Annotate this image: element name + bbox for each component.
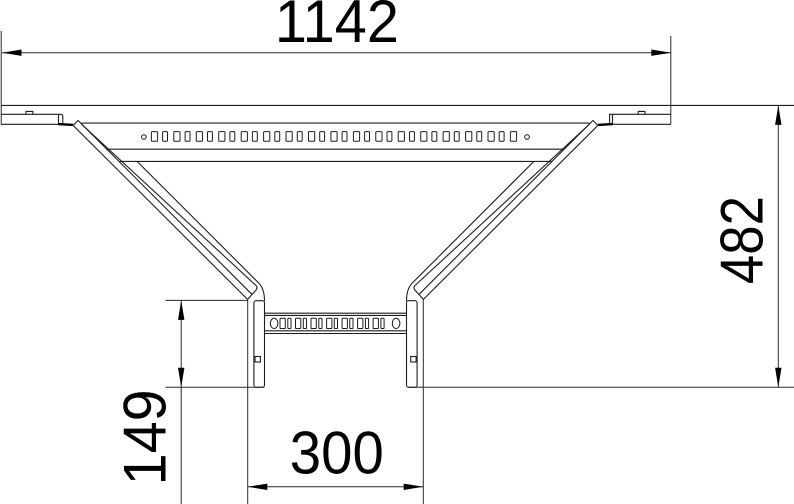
svg-text:1142: 1142: [275, 0, 399, 55]
svg-text:482: 482: [709, 196, 776, 284]
svg-text:149: 149: [111, 389, 178, 485]
svg-text:300: 300: [290, 420, 384, 487]
